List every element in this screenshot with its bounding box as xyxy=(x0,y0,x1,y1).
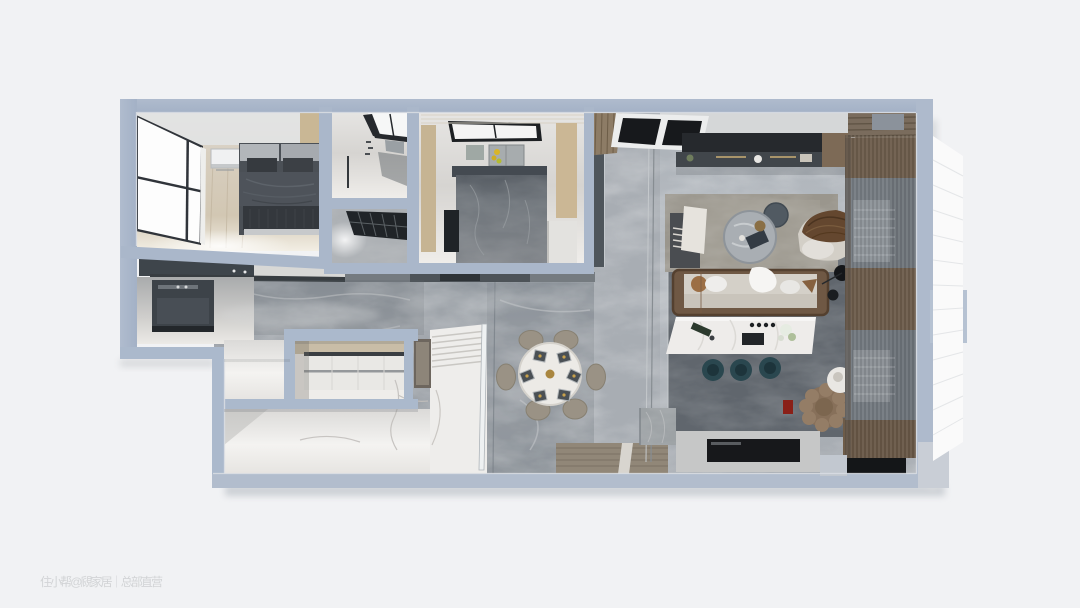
svg-text:住小帮@覛家居｜总部直营: 住小帮@覛家居｜总部直营 xyxy=(40,574,163,589)
